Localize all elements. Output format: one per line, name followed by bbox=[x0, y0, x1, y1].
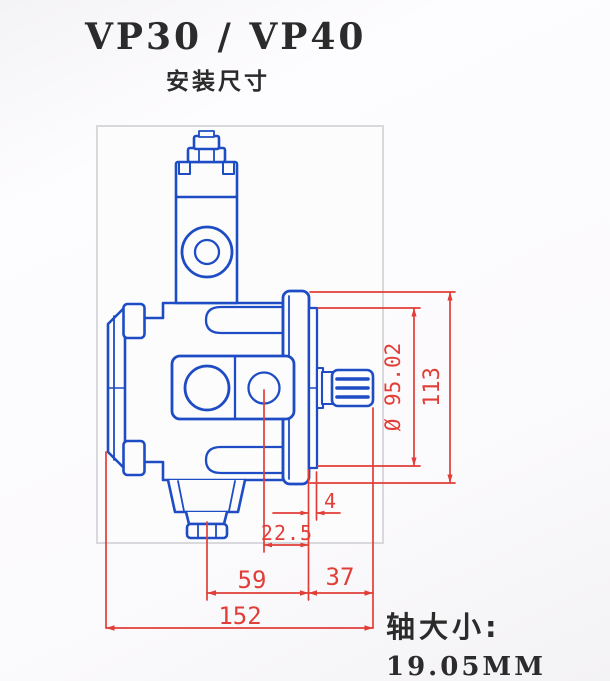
bolt-boss-top bbox=[124, 304, 145, 338]
shaft-size-value: 19.05MM bbox=[386, 652, 546, 681]
dim-spigot-depth: 4 bbox=[324, 489, 336, 513]
adjust-screw-head bbox=[194, 136, 219, 149]
dim-pilot-diameter: Ø 95.02 bbox=[381, 343, 405, 432]
shaft-size-label: 轴大小: bbox=[386, 604, 546, 646]
dim-overall-length: 152 bbox=[218, 602, 261, 630]
shaft-size-note: 轴大小: 19.05MM bbox=[386, 604, 546, 681]
page: VP30 / VP40 安装尺寸 bbox=[0, 0, 610, 681]
dim-center-to-flange: 59 bbox=[238, 566, 267, 594]
bolt-boss-bottom bbox=[124, 441, 145, 475]
pump-technical-drawing: 4 22.5 59 37 152 Ø 95.02 113 bbox=[0, 0, 610, 681]
dim-flange-to-shaft-end: 37 bbox=[326, 563, 355, 591]
port-block bbox=[172, 356, 294, 419]
dim-flange-height: 113 bbox=[420, 367, 445, 407]
drive-shaft bbox=[310, 368, 373, 408]
dim-port-offset: 22.5 bbox=[261, 521, 313, 545]
